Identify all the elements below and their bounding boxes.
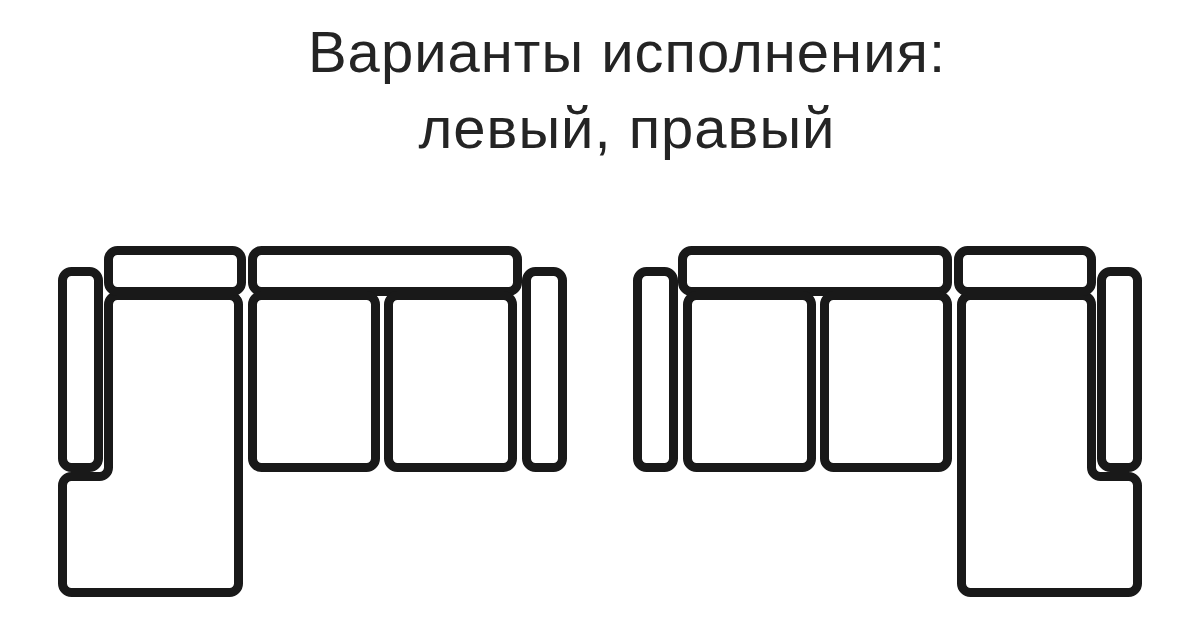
right-sofa-seat-cushion-1 xyxy=(825,296,948,468)
right-sofa-back-cushion-large xyxy=(683,251,948,292)
right-sofa-armrest-left xyxy=(638,272,674,468)
left-sofa-armrest-right xyxy=(527,272,563,468)
left-sofa-back-cushion-large xyxy=(253,251,518,292)
left-sofa-seat-cushion-2 xyxy=(389,296,513,468)
left-sofa-armrest-left xyxy=(63,272,99,468)
right-sofa-back-cushion-small xyxy=(959,251,1092,292)
sofa-right-variant xyxy=(638,251,1138,593)
sofa-variants-diagram xyxy=(0,0,1200,644)
right-sofa-seat-cushion-2 xyxy=(688,296,812,468)
sofa-left-variant xyxy=(63,251,563,593)
left-sofa-seat-cushion-1 xyxy=(253,296,376,468)
page: Варианты исполнения: левый, правый xyxy=(0,0,1200,644)
right-sofa-armrest-right xyxy=(1102,272,1138,468)
left-sofa-back-cushion-small xyxy=(109,251,242,292)
